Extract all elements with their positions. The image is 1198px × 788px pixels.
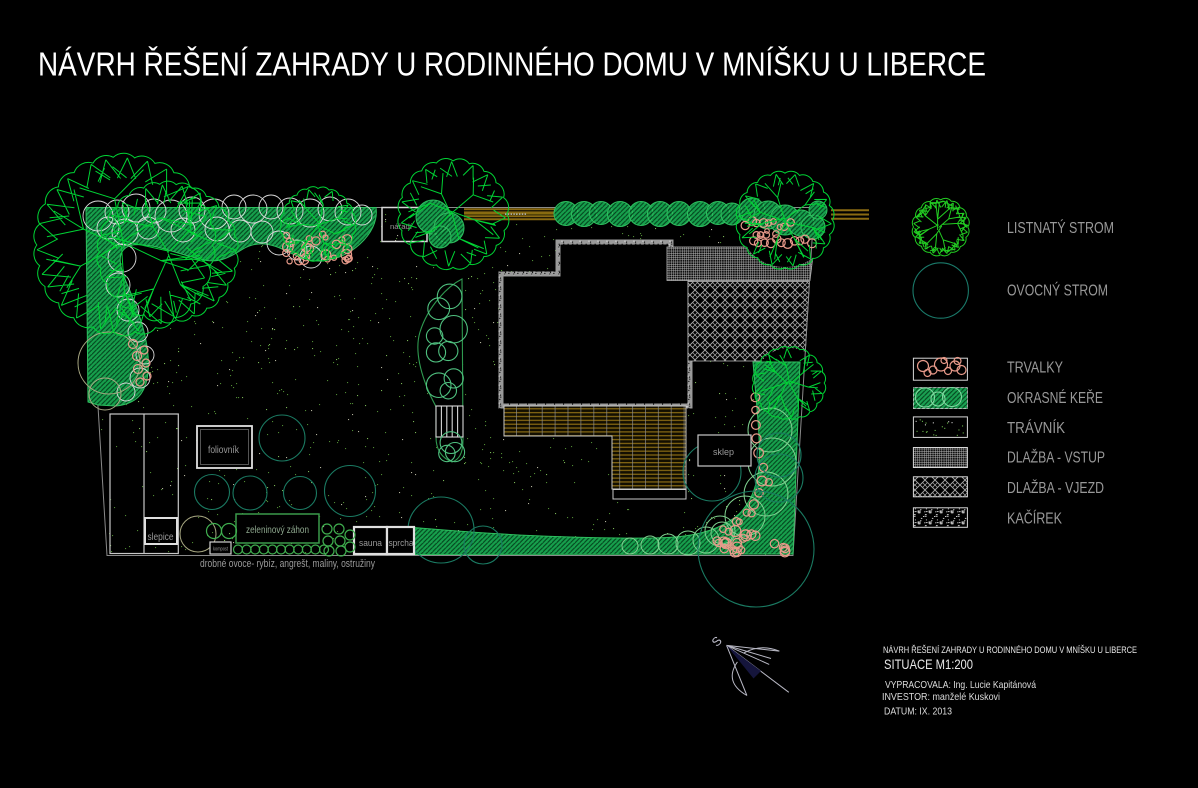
svg-text:SITUACE M1:200: SITUACE M1:200 <box>884 656 973 672</box>
svg-text:NÁVRH ŘEŠENÍ ZAHRADY U RODINNÉ: NÁVRH ŘEŠENÍ ZAHRADY U RODINNÉHO DOMU V … <box>883 645 1137 656</box>
svg-text:VYPRACOVALA: Ing. Lucie Kapitá: VYPRACOVALA: Ing. Lucie Kapitánová <box>885 679 1036 691</box>
svg-text:DATUM: IX. 2013: DATUM: IX. 2013 <box>884 706 952 718</box>
svg-text:NÁVRH ŘEŠENÍ ZAHRADY U RODINNÉ: NÁVRH ŘEŠENÍ ZAHRADY U RODINNÉHO DOMU V … <box>38 46 986 84</box>
svg-text:INVESTOR: manželé Kuskovi: INVESTOR: manželé Kuskovi <box>882 691 1000 703</box>
